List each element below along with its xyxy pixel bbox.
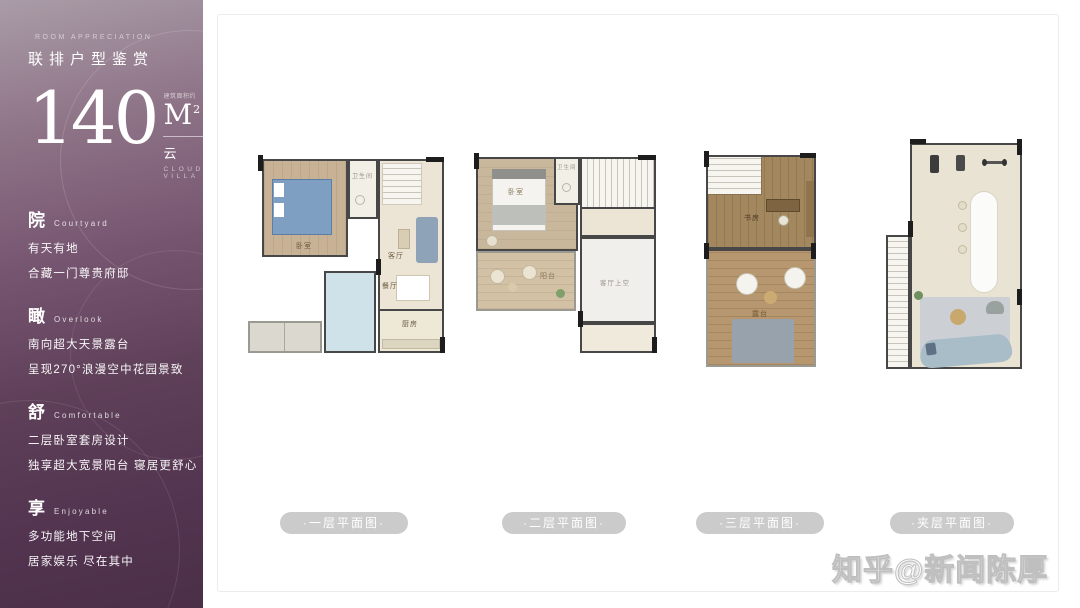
dumbbell	[984, 161, 1004, 164]
wall-segment	[704, 151, 709, 167]
feature-enjoyable: 享 Enjoyable 多功能地下空间 居家娱乐 尽在其中	[28, 494, 189, 569]
stool	[958, 223, 967, 232]
wall-segment	[638, 155, 656, 160]
wall-segment	[1017, 139, 1022, 155]
area-unit: M	[163, 101, 192, 129]
zhihu-watermark: 知乎@新闻陈厚	[832, 545, 1048, 589]
treadmill	[930, 155, 939, 173]
product-name-en: CLOUD VILLA	[163, 166, 203, 180]
feature-heading: 院 Courtyard	[28, 206, 189, 231]
toilet	[562, 183, 571, 192]
plan-caption-level2: ·二层平面图·	[502, 512, 626, 534]
kitchen-counter	[382, 339, 440, 349]
feature-char: 瞰	[28, 302, 45, 327]
wall-segment	[258, 155, 263, 171]
wall-segment	[908, 221, 913, 237]
blanket	[492, 205, 546, 225]
bookshelf	[806, 181, 814, 237]
side-table	[508, 283, 517, 292]
feature-list: 院 Courtyard 有天有地 合藏一门尊贵府邸 瞰 Overlook 南向超…	[28, 206, 189, 569]
round-table	[950, 309, 966, 325]
feature-line: 多功能地下空间	[28, 528, 189, 544]
wall-segment	[376, 259, 381, 275]
plant	[556, 289, 565, 298]
pillow	[274, 183, 284, 197]
sink	[355, 195, 365, 205]
wall-segment	[1017, 289, 1022, 305]
pillow	[274, 203, 284, 217]
room-study: 书房	[706, 155, 816, 249]
floorplan-level3: 书房 露台	[700, 151, 822, 373]
feature-char: 院	[28, 206, 45, 231]
plan-caption-mezzanine: ·夹层平面图·	[890, 512, 1014, 534]
feature-english: Enjoyable	[54, 507, 109, 516]
feature-comfortable: 舒 Comfortable 二层卧室套房设计 独享超大宽景阳台 寝居更舒心	[28, 398, 189, 473]
floorplan-mezzanine	[886, 139, 1026, 375]
round-chair	[736, 273, 758, 295]
dumbbell-end	[982, 159, 987, 166]
room-label: 客厅	[388, 251, 404, 261]
balcony: 阳台	[476, 251, 576, 311]
product-name-cn: 云 汐	[163, 143, 203, 162]
room-label: 客厅上空	[600, 277, 630, 287]
room-kitchen: 厨房	[378, 309, 444, 353]
stair-corridor	[886, 235, 910, 369]
lounge-mat	[732, 319, 794, 363]
pool	[324, 271, 376, 353]
desk	[766, 199, 800, 212]
room-label: 书房	[744, 213, 760, 223]
room-bathroom: 卫生间	[554, 157, 580, 205]
poster: ROOM APPRECIATION 联排户型鉴赏 140 建筑面积约 M 2 合…	[0, 0, 1080, 608]
cushion	[925, 342, 937, 355]
room-label: 厨房	[402, 319, 418, 329]
room-label: 阳台	[540, 271, 556, 281]
yard-structure	[248, 321, 322, 353]
room-label: 餐厅	[382, 281, 398, 291]
area-block: 140 建筑面积约 M 2 合院 云 汐 CLOUD VILLA	[28, 83, 189, 180]
feature-char: 享	[28, 494, 45, 519]
feature-english: Overlook	[54, 315, 104, 324]
round-chair	[784, 267, 806, 289]
room-multifunction	[910, 143, 1022, 369]
stairs	[708, 157, 762, 195]
room-label: 卫生间	[352, 171, 373, 180]
room-bedroom: 卧室	[262, 159, 348, 257]
feature-line: 呈现270°浪漫空中花园景致	[28, 361, 189, 377]
coffee-table	[398, 229, 410, 249]
feature-line: 有天有地	[28, 240, 189, 256]
landing	[580, 209, 656, 237]
stairs	[580, 157, 656, 209]
feature-overlook: 瞰 Overlook 南向超大天景露台 呈现270°浪漫空中花园景致	[28, 302, 189, 377]
room-label: 露台	[752, 309, 768, 319]
stool	[958, 201, 967, 210]
room-label: 卧室	[296, 241, 312, 251]
partition-line	[284, 323, 285, 351]
feature-line: 独享超大宽景阳台 寝居更舒心	[28, 457, 189, 473]
chair	[490, 269, 505, 284]
divider	[163, 136, 203, 137]
exercise-bike	[956, 155, 965, 171]
feature-line: 南向超大天景露台	[28, 336, 189, 352]
feature-english: Comfortable	[54, 411, 122, 420]
terrace: 露台	[706, 249, 816, 367]
feature-courtyard: 院 Courtyard 有天有地 合藏一门尊贵府邸	[28, 206, 189, 281]
feature-heading: 瞰 Overlook	[28, 302, 189, 327]
feature-line: 居家娱乐 尽在其中	[28, 553, 189, 569]
headboard	[492, 169, 546, 179]
feature-char: 舒	[28, 398, 45, 423]
stool	[958, 245, 967, 254]
sidebar-panel: ROOM APPRECIATION 联排户型鉴赏 140 建筑面积约 M 2 合…	[0, 0, 203, 608]
area-unit-superscript: 2	[193, 104, 200, 115]
wall-segment	[652, 337, 657, 353]
room-roof-access	[580, 323, 656, 353]
room-bathroom: 卫生间	[348, 159, 378, 219]
plant	[914, 291, 923, 300]
wall-segment	[800, 153, 816, 158]
dumbbell-end	[1002, 159, 1007, 166]
wall-segment	[440, 337, 445, 353]
area-number: 140	[28, 83, 156, 180]
room-void: 客厅上空	[580, 237, 656, 323]
feature-english: Courtyard	[54, 219, 109, 228]
plan-caption-level3: ·三层平面图·	[696, 512, 824, 534]
chair	[522, 265, 537, 280]
floorplan-canvas: 卧室 卫生间 客厅 餐厅 厨房	[217, 14, 1059, 592]
feature-heading: 舒 Comfortable	[28, 398, 189, 423]
room-label: 卫生间	[557, 163, 577, 171]
wall-segment	[426, 157, 444, 162]
area-detail: 建筑面积约 M 2 合院 云 汐 CLOUD VILLA	[163, 83, 203, 180]
plan-caption-level1: ·一层平面图·	[280, 512, 408, 534]
sofa	[416, 217, 438, 263]
bar-table	[970, 191, 998, 293]
wall-segment	[910, 139, 926, 144]
wall-segment	[811, 243, 816, 259]
round-table	[764, 291, 777, 304]
desk-chair	[778, 215, 789, 226]
stairs	[382, 163, 422, 205]
feature-heading: 享 Enjoyable	[28, 494, 189, 519]
room-label: 卧室	[508, 187, 524, 197]
armchair	[986, 301, 1004, 314]
chair	[486, 235, 498, 247]
wall-segment	[578, 311, 583, 327]
floorplan-level2: 卧室 卫生间 客厅上空 阳台	[470, 151, 662, 361]
floorplan-level1: 卧室 卫生间 客厅 餐厅 厨房	[248, 151, 448, 361]
feature-line: 二层卧室套房设计	[28, 432, 189, 448]
area-unit-row: M 2 合院	[163, 101, 203, 129]
feature-line: 合藏一门尊贵府邸	[28, 265, 189, 281]
dining-table	[396, 275, 430, 301]
wall-segment	[474, 153, 479, 169]
wall-segment	[704, 243, 709, 259]
